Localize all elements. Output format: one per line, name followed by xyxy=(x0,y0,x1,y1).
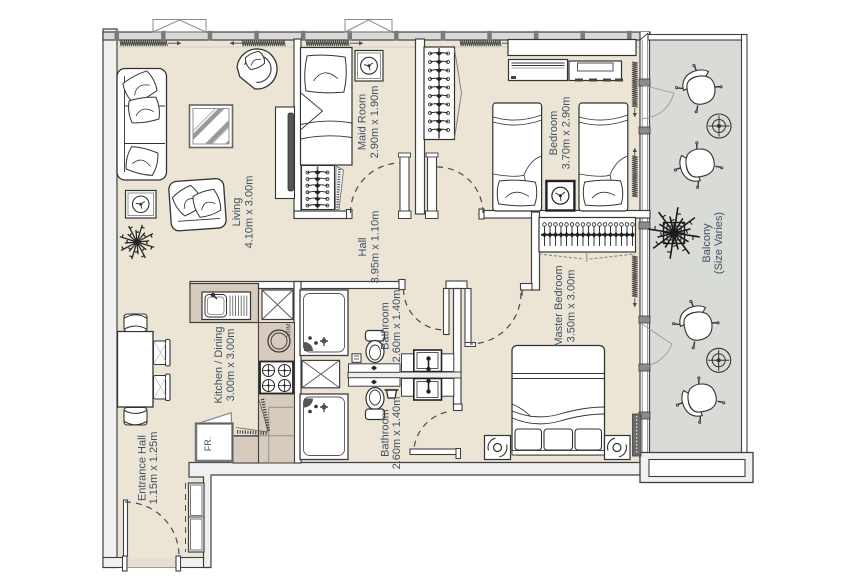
svg-text:Hall: Hall xyxy=(357,238,369,257)
svg-text:Living: Living xyxy=(231,198,243,227)
svg-text:2.60m x 1.40m: 2.60m x 1.40m xyxy=(391,290,403,363)
svg-text:3.95m x 1.10m: 3.95m x 1.10m xyxy=(370,211,382,284)
svg-text:Master Bedroom: Master Bedroom xyxy=(553,265,565,346)
svg-text:Balcony: Balcony xyxy=(701,223,713,263)
svg-text:3.50m x 3.00m: 3.50m x 3.00m xyxy=(566,270,578,343)
svg-text:Bedroom: Bedroom xyxy=(548,111,560,156)
svg-text:Bathroom: Bathroom xyxy=(380,409,392,457)
svg-text:3.70m x 2.90m: 3.70m x 2.90m xyxy=(561,97,573,170)
svg-text:2.60m x 1.40m: 2.60m x 1.40m xyxy=(391,397,403,470)
svg-text:(Size Varies): (Size Varies) xyxy=(713,212,725,274)
svg-text:Bathroom: Bathroom xyxy=(380,302,392,350)
svg-text:Maid Room: Maid Room xyxy=(357,94,369,150)
svg-text:Entrance Hall: Entrance Hall xyxy=(137,435,149,501)
svg-text:1.15m x 1.25m: 1.15m x 1.25m xyxy=(148,432,160,505)
svg-text:FR.: FR. xyxy=(203,437,213,452)
svg-text:Kitchen / Dining: Kitchen / Dining xyxy=(213,326,225,403)
svg-text:4.10m x 3.00m: 4.10m x 3.00m xyxy=(244,176,256,249)
svg-text:2.90m x 1.90m: 2.90m x 1.90m xyxy=(369,86,381,159)
svg-text:W/M: W/M xyxy=(286,323,293,336)
svg-text:3.00m x 3.00m: 3.00m x 3.00m xyxy=(225,329,237,402)
